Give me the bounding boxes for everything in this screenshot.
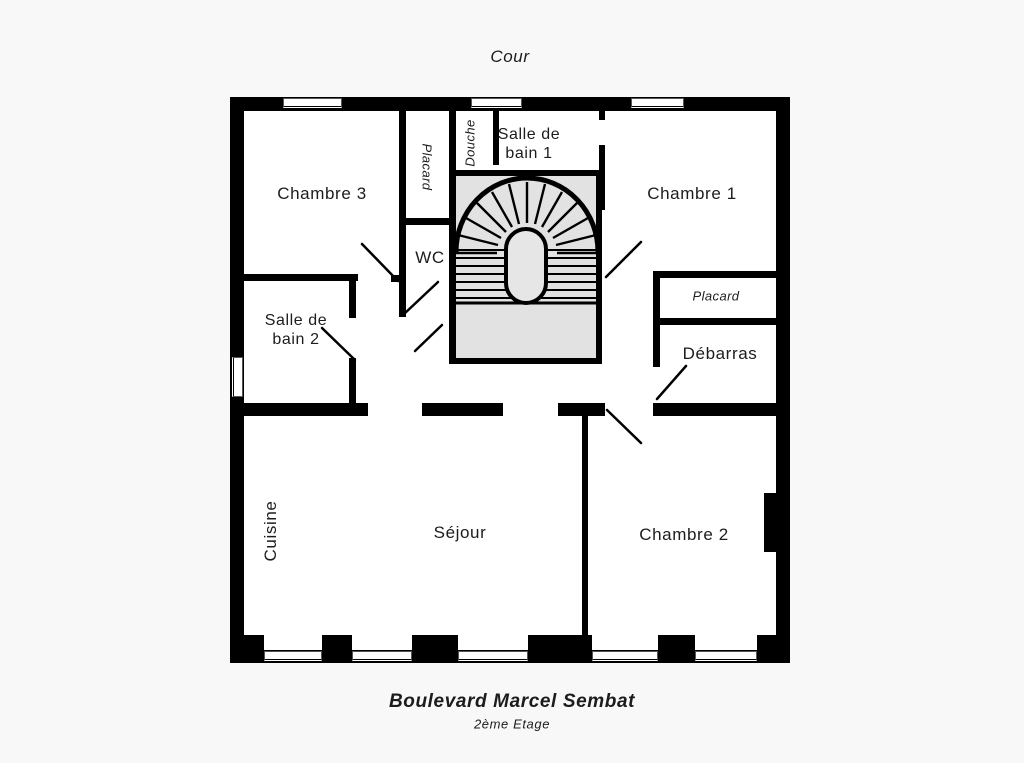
label-sejour: Séjour xyxy=(434,523,487,543)
label-sdb1-line1: Salle de xyxy=(498,125,561,144)
label-street: Boulevard Marcel Sembat xyxy=(389,691,635,713)
label-sdb2-line2: bain 2 xyxy=(265,330,328,349)
label-chambre3: Chambre 3 xyxy=(277,184,367,204)
label-wc: WC xyxy=(415,248,445,268)
label-floor: 2ème Etage xyxy=(474,717,550,732)
label-sdb2-line1: Salle de xyxy=(265,311,328,330)
label-cour: Cour xyxy=(490,47,529,67)
label-sdb2: Salle de bain 2 xyxy=(265,311,328,349)
stair-newel-oval xyxy=(506,229,546,303)
door-swing-chambre1 xyxy=(606,242,641,277)
label-placard-est: Placard xyxy=(693,289,740,304)
stair-and-doors-drawing xyxy=(0,0,1024,763)
label-cuisine: Cuisine xyxy=(261,501,281,562)
label-douche: Douche xyxy=(463,119,478,166)
door-swing-wc xyxy=(404,282,438,314)
door-swing-hall xyxy=(415,325,442,351)
floorplan-canvas: Cour Chambre 3 Placard Douche Salle de b… xyxy=(0,0,1024,763)
label-placard-nord: Placard xyxy=(420,144,435,191)
door-swing-chambre2 xyxy=(607,410,641,443)
label-debarras: Débarras xyxy=(683,344,758,364)
label-chambre1: Chambre 1 xyxy=(647,184,737,204)
label-sdb1-line2: bain 1 xyxy=(498,144,561,163)
door-swing-chambre3 xyxy=(362,244,398,281)
label-sdb1: Salle de bain 1 xyxy=(498,125,561,163)
label-chambre2: Chambre 2 xyxy=(639,525,729,545)
door-swing-debarras xyxy=(657,366,686,399)
